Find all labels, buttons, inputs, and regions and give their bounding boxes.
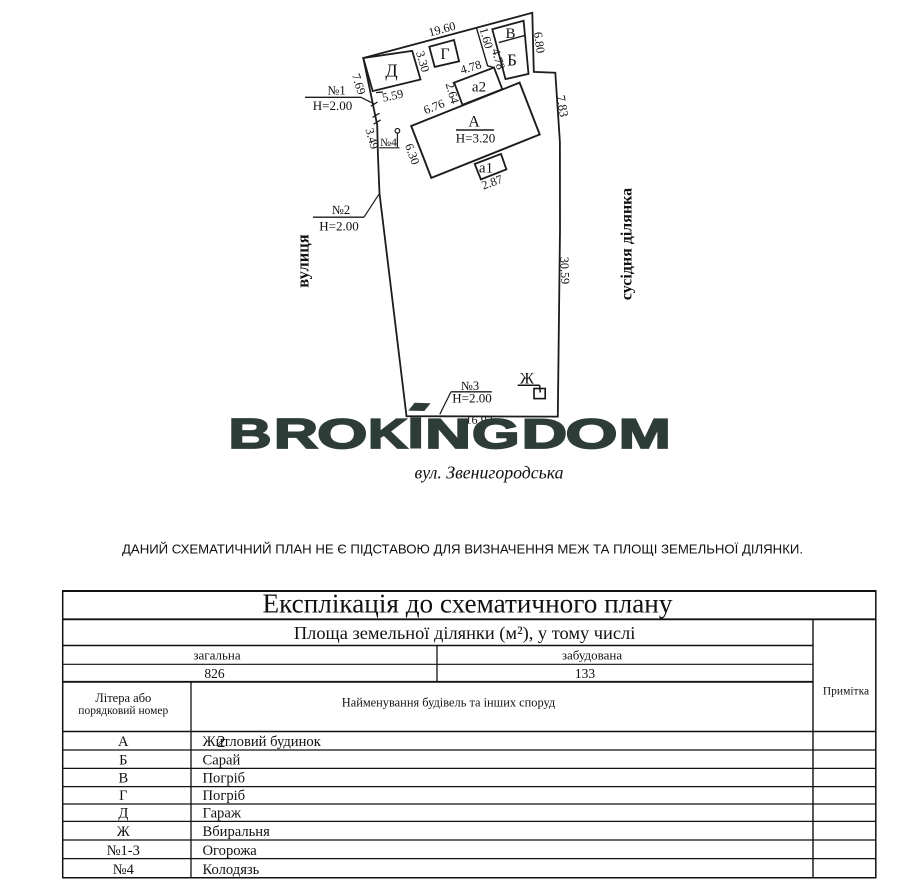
svg-text:порядковий номер: порядковий номер — [78, 705, 168, 717]
svg-text:2: 2 — [217, 732, 226, 751]
svg-text:30.59: 30.59 — [557, 257, 572, 285]
svg-text:Найменування будівель та інших: Найменування будівель та інших споруд — [342, 696, 556, 710]
svg-text:Експлікація до схематичного пл: Експлікація до схематичного плану — [263, 589, 673, 619]
svg-text:Ж: Ж — [117, 824, 130, 840]
svg-text:Літера або: Літера або — [95, 691, 151, 705]
svg-text:Сарай: Сарай — [203, 752, 241, 768]
svg-text:а2: а2 — [472, 80, 486, 96]
svg-text:Д: Д — [118, 806, 128, 822]
svg-text:№4: №4 — [113, 862, 135, 878]
svg-text:В: В — [505, 26, 515, 42]
svg-text:сусідня ділянка: сусідня ділянка — [619, 188, 636, 300]
svg-text:O: O — [566, 410, 618, 457]
svg-text:M: M — [619, 410, 671, 457]
svg-text:№1-3: №1-3 — [107, 843, 140, 859]
svg-text:19.60: 19.60 — [427, 19, 457, 40]
svg-text:В: В — [118, 771, 128, 787]
svg-text:133: 133 — [575, 666, 596, 681]
svg-text:O: O — [317, 410, 367, 457]
svg-text:Колодязь: Колодязь — [203, 862, 260, 878]
svg-text:А: А — [468, 113, 480, 130]
svg-text:Д: Д — [385, 61, 397, 81]
svg-text:H=2.00: H=2.00 — [313, 98, 352, 113]
svg-text:Гараж: Гараж — [203, 806, 242, 822]
svg-text:А: А — [118, 734, 129, 750]
svg-text:Б: Б — [119, 752, 127, 768]
svg-text:Погріб: Погріб — [203, 771, 246, 787]
svg-text:3.49: 3.49 — [362, 126, 381, 150]
svg-text:7.69: 7.69 — [349, 72, 369, 97]
svg-text:Погріб: Погріб — [203, 788, 246, 804]
svg-text:N: N — [425, 410, 471, 457]
svg-text:H=2.00: H=2.00 — [452, 391, 491, 406]
svg-text:D: D — [522, 410, 568, 457]
svg-text:4.78: 4.78 — [459, 57, 483, 77]
svg-text:забудована: забудована — [562, 648, 623, 663]
svg-text:5.59: 5.59 — [381, 87, 405, 105]
svg-text:Г: Г — [119, 788, 127, 804]
svg-text:Примітка: Примітка — [823, 686, 869, 698]
svg-text:ДАНИЙ СХЕМАТИЧНИЙ ПЛАН НЕ Є П: ДАНИЙ СХЕМАТИЧНИЙ ПЛАН НЕ Є ПІДСТАВОЮ ДЛ… — [122, 542, 803, 557]
svg-text:№1: №1 — [327, 84, 345, 98]
svg-text:H=2.00: H=2.00 — [319, 219, 358, 234]
svg-text:K: K — [368, 410, 408, 457]
svg-text:3.30: 3.30 — [413, 49, 432, 73]
svg-text:Огорожа: Огорожа — [203, 843, 258, 859]
svg-text:Вбиральня: Вбиральня — [203, 824, 271, 840]
svg-text:Г: Г — [440, 46, 449, 63]
svg-text:№2: №2 — [332, 203, 350, 217]
svg-text:Площа земельної ділянки (м²),: Площа земельної ділянки (м²), у тому чис… — [294, 623, 635, 644]
svg-text:2.64: 2.64 — [443, 81, 462, 105]
svg-text:H=3.20: H=3.20 — [456, 130, 495, 145]
svg-text:7.83: 7.83 — [554, 94, 572, 118]
svg-text:загальна: загальна — [193, 648, 240, 663]
svg-text:6.80: 6.80 — [531, 31, 548, 54]
svg-text:826: 826 — [204, 666, 225, 681]
svg-text:R: R — [274, 410, 318, 457]
svg-text:B: B — [229, 410, 272, 457]
svg-text:вулиця: вулиця — [294, 234, 313, 287]
svg-text:вул. Звенигородська: вул. Звенигородська — [414, 463, 563, 483]
svg-text:G: G — [472, 410, 520, 457]
